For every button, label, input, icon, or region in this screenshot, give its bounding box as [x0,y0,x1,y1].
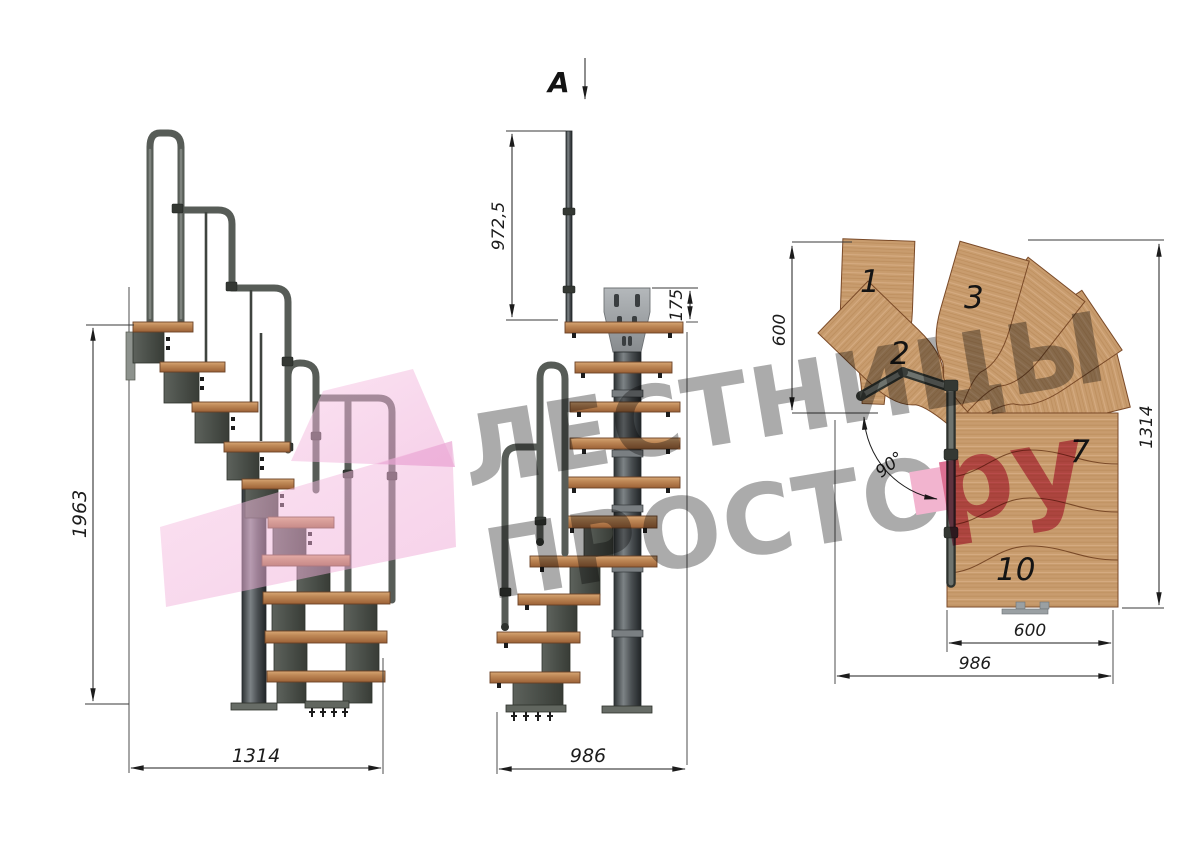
watermark-domain: ру [923,397,1096,551]
section-mark: A [546,58,585,99]
side-elevation-view: 1963 1314 [69,133,456,774]
dim-plan-step-width: 600 [1014,621,1046,641]
drawing-canvas: 1963 1314 A 972,5 [0,0,1200,849]
side-lower-flight [263,592,390,717]
dim-side-height: 1963 [69,490,91,538]
side-newel-base-plate [231,703,277,710]
step-label-1: 1 [860,264,880,300]
dim-plan-depth: 1314 [1137,405,1157,448]
section-label: A [546,66,570,99]
front-anchor-bolts [511,712,553,721]
dim-front-handrail-height: 972,5 [489,202,509,251]
front-dim-bracket: 175 [652,288,698,322]
front-top-post [563,131,575,332]
staircase-drawing: 1963 1314 A 972,5 [0,0,1200,849]
side-anchor-bolts [309,708,348,717]
front-mount-bracket [604,288,650,352]
front-dim-handrail: 972,5 [489,131,566,320]
dim-front-width: 986 [570,745,606,767]
dim-plan-total-width: 986 [959,654,992,674]
front-dim-width: 986 [497,712,685,774]
dim-side-width: 1314 [232,745,280,767]
step-label-10: 10 [996,552,1035,588]
dim-front-bracket: 175 [667,289,687,321]
